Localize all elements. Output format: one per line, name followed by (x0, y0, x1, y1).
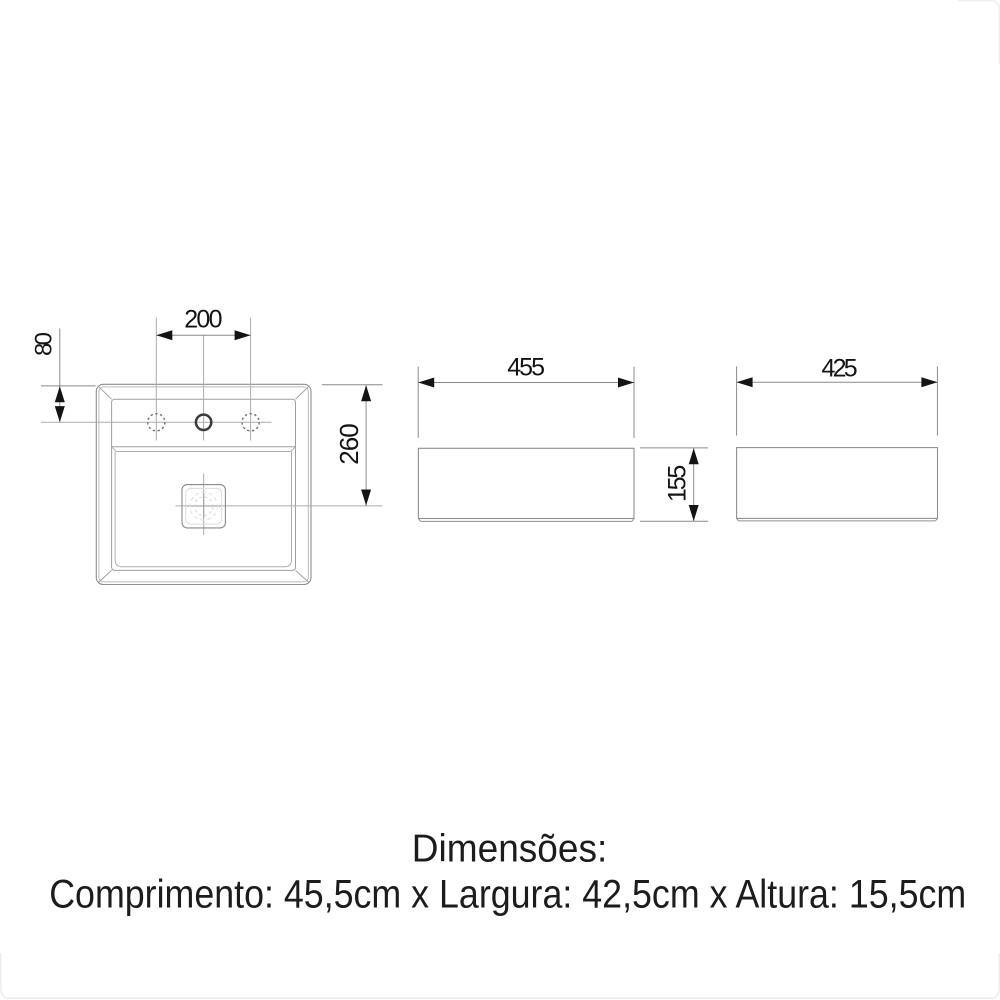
svg-text:80: 80 (30, 332, 57, 356)
svg-text:Comprimento: 45,5cm x Largura:: Comprimento: 45,5cm x Largura: 42,5cm x … (49, 872, 966, 916)
svg-text:425: 425 (822, 354, 858, 382)
svg-text:455: 455 (507, 353, 545, 381)
svg-text:Dimensões:: Dimensões: (412, 828, 608, 871)
svg-text:200: 200 (184, 306, 222, 334)
svg-text:260: 260 (334, 423, 364, 465)
svg-text:155: 155 (663, 465, 691, 502)
